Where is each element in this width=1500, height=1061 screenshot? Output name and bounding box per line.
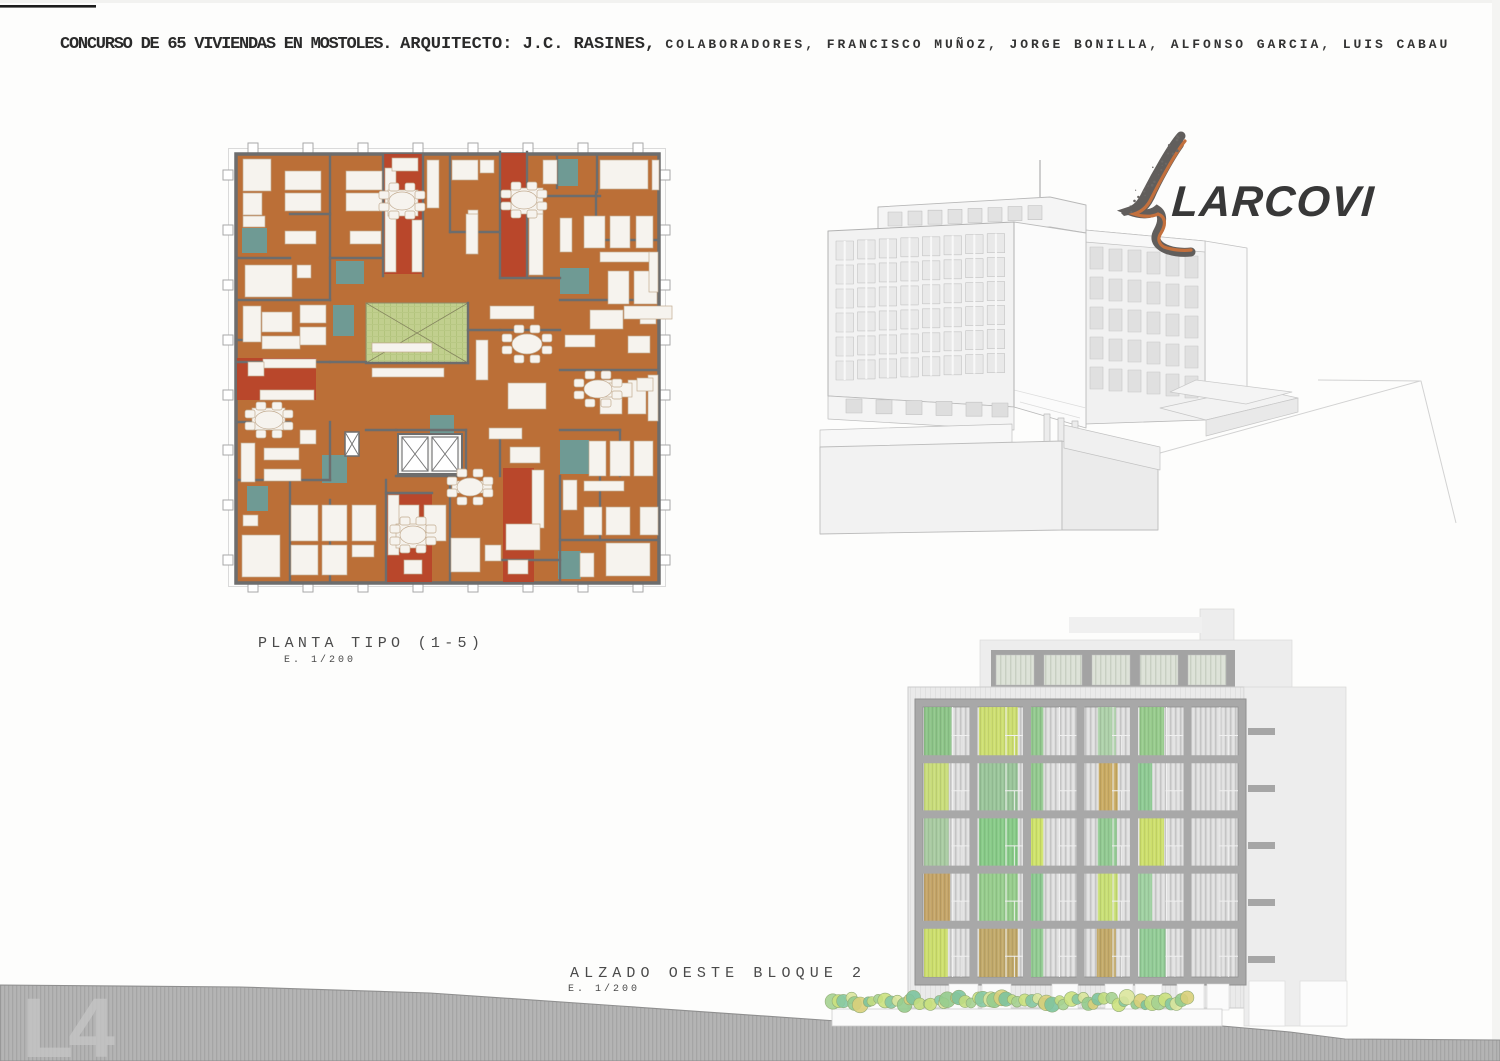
svg-text:LARCOVI: LARCOVI [1170, 178, 1376, 226]
svg-text:L4: L4 [22, 981, 115, 1061]
